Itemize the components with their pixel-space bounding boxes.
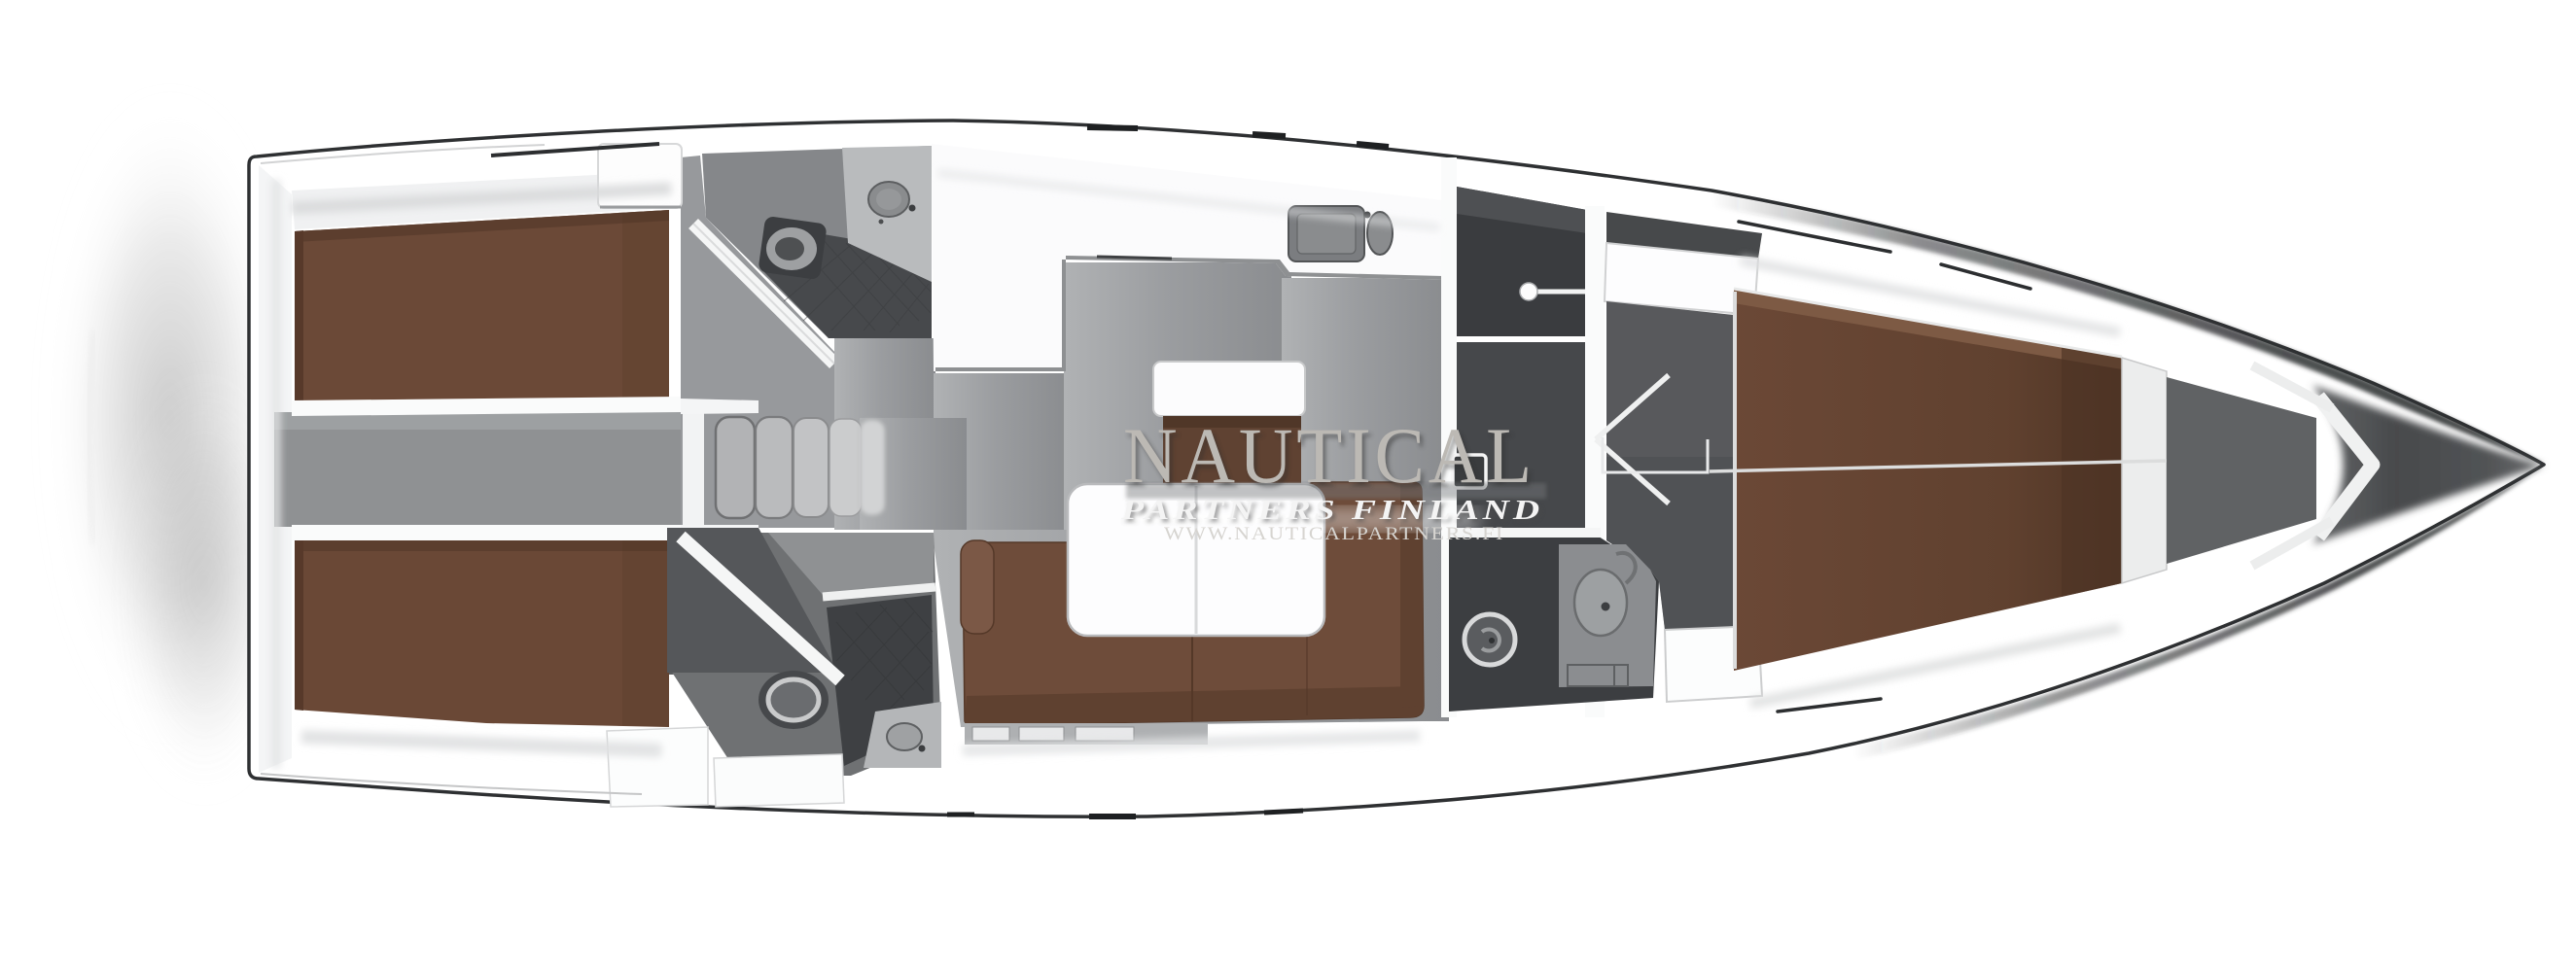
- svg-text:WWW.NAUTICALPARTNERS.FI: WWW.NAUTICALPARTNERS.FI: [1164, 524, 1504, 544]
- svg-text:NAUTICAL: NAUTICAL: [1123, 411, 1535, 500]
- svg-text:PARTNERS FINLAND: PARTNERS FINLAND: [1120, 495, 1543, 526]
